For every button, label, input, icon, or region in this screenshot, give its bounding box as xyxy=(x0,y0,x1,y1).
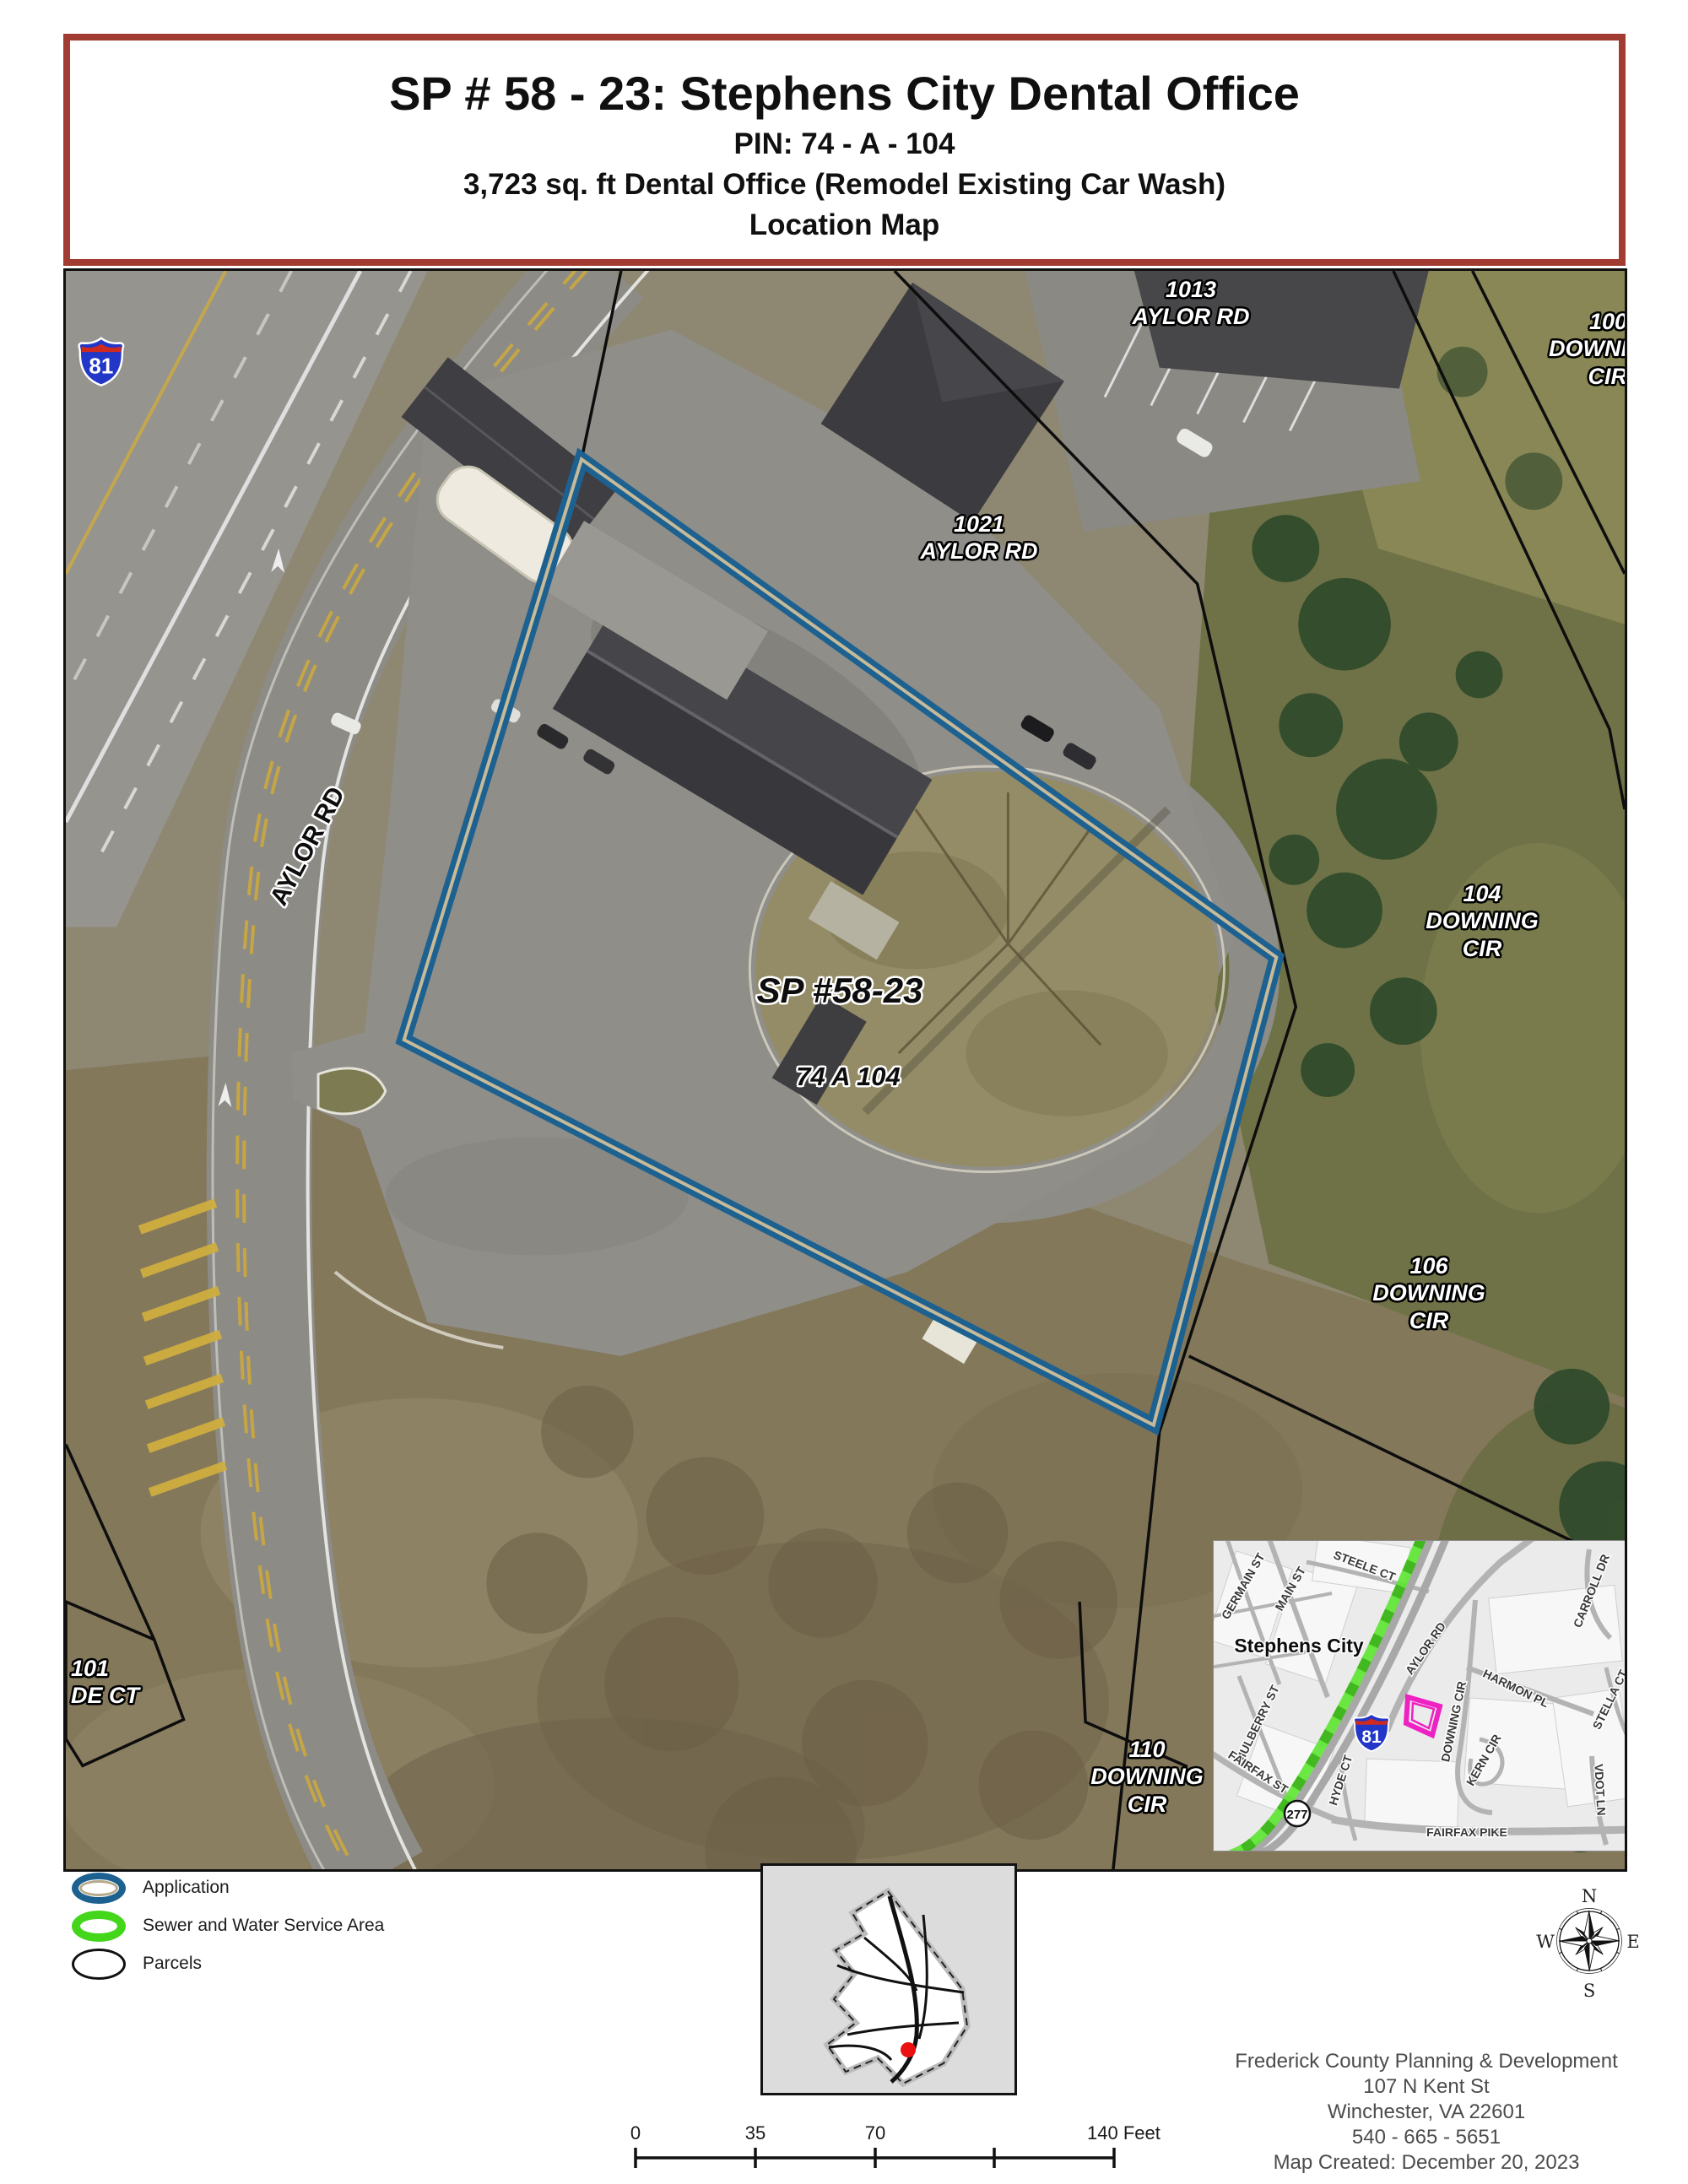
scale-bar: 0 35 70 140 Feet xyxy=(620,2114,1262,2184)
site-pin-label: 74 A 104 xyxy=(722,1061,975,1092)
title-box: SP # 58 - 23: Stephens City Dental Offic… xyxy=(63,34,1626,266)
compass-graphic: N E S W xyxy=(1530,1878,1648,2004)
inset-interstate-81-number: 81 xyxy=(1361,1727,1382,1747)
parcel-label-100-downing-cir: 100 DOWNI CIR xyxy=(1533,308,1627,390)
legend-item-application: Application xyxy=(72,1872,384,1904)
location-map-page: SP # 58 - 23: Stephens City Dental Offic… xyxy=(0,0,1688,2184)
credits-created: Map Created: December 20, 2023 xyxy=(1182,2150,1671,2176)
project-subtitle: 3,723 sq. ft Dental Office (Remodel Exis… xyxy=(70,168,1619,202)
inset-route-277-shield: 277 xyxy=(1285,1801,1310,1826)
site-case-label: SP #58-23 xyxy=(688,970,992,1012)
credits-city: Winchester, VA 22601 xyxy=(1182,2100,1671,2125)
scale-bar-line xyxy=(636,2148,1114,2168)
scale-bar-graphic: 0 35 70 140 Feet xyxy=(620,2114,1262,2181)
scale-bar-labels: 0 35 70 140 Feet xyxy=(630,2122,1160,2143)
inset-route-277-number: 277 xyxy=(1286,1808,1307,1822)
site-location-dot xyxy=(901,2042,916,2057)
credits-address: 107 N Kent St xyxy=(1182,2074,1671,2100)
legend-label-parcels: Parcels xyxy=(143,1954,202,1974)
inset-city-label: Stephens City xyxy=(1234,1635,1364,1657)
inset-street-fairfax-pike: FAIRFAX PIKE xyxy=(1426,1825,1507,1839)
compass-w: W xyxy=(1536,1932,1555,1952)
compass-s: S xyxy=(1583,1981,1595,2001)
legend-item-parcels: Parcels xyxy=(72,1948,384,1980)
county-overview-graphic xyxy=(763,1866,1014,2093)
scale-tick-140-feet: 140 Feet xyxy=(1087,2122,1160,2143)
inset-map: 81 277 GERMAIN ST MAIN ST STEELE CT CARR… xyxy=(1214,1541,1627,1851)
application-swatch-icon xyxy=(72,1873,126,1904)
compass-n: N xyxy=(1582,1886,1597,1906)
credits-org: Frederick County Planning & Development xyxy=(1182,2049,1671,2074)
inset-street-vdot-ln: VDOT LN xyxy=(1592,1764,1608,1816)
parcel-label-101-hyde-ct: 101 DE CT xyxy=(71,1655,189,1710)
page-title: SP # 58 - 23: Stephens City Dental Offic… xyxy=(70,66,1619,121)
scale-tick-35: 35 xyxy=(745,2122,766,2143)
pin-subtitle: PIN: 74 - A - 104 xyxy=(70,127,1619,161)
parcel-label-104-downing-cir: 104 DOWNING CIR xyxy=(1398,880,1566,962)
parcel-label-1021-aylor-rd: 1021 AYLOR RD xyxy=(895,511,1063,565)
credits: Frederick County Planning & Development … xyxy=(1182,2049,1671,2176)
legend-label-application: Application xyxy=(143,1878,230,1898)
inset-map-graphic: 81 277 GERMAIN ST MAIN ST STEELE CT CARR… xyxy=(1214,1541,1627,1851)
interstate-81-number: 81 xyxy=(89,355,113,379)
scale-tick-0: 0 xyxy=(630,2122,641,2143)
legend-label-sewer: Sewer and Water Service Area xyxy=(143,1916,384,1936)
sewer-swatch-icon xyxy=(72,1911,126,1942)
parcel-label-110-downing-cir: 110 DOWNING CIR xyxy=(1063,1736,1231,1818)
aerial-map: 81 1013 AYLOR RD 100 DOWNI CIR 1021 AYLO… xyxy=(63,268,1627,1872)
parcel-label-1013-aylor-rd: 1013 AYLOR RD xyxy=(1106,276,1275,331)
compass-e: E xyxy=(1626,1932,1639,1952)
map-type-subtitle: Location Map xyxy=(70,208,1619,242)
scale-tick-70: 70 xyxy=(865,2122,885,2143)
compass-rose: N E S W xyxy=(1530,1878,1648,2008)
legend-item-sewer: Sewer and Water Service Area xyxy=(72,1910,384,1942)
county-overview-map xyxy=(760,1863,1017,2095)
parcels-swatch-icon xyxy=(72,1949,126,1980)
parcel-label-106-downing-cir: 106 DOWNING CIR xyxy=(1344,1252,1513,1334)
credits-phone: 540 - 665 - 5651 xyxy=(1182,2125,1671,2150)
legend: Application Sewer and Water Service Area… xyxy=(72,1872,384,1986)
